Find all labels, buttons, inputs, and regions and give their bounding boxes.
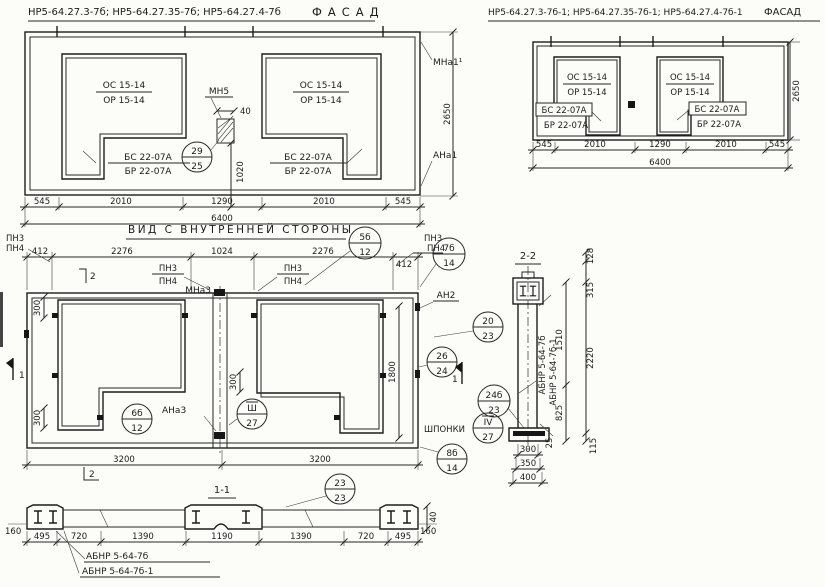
pn-label-mid-right: ПН3 ПН4 xyxy=(258,264,309,291)
svg-text:2276: 2276 xyxy=(312,247,334,257)
svg-text:Ш: Ш xyxy=(247,404,257,414)
opening-mark-os: ОС 15-14 xyxy=(300,81,343,91)
svg-text:25: 25 xyxy=(191,162,202,172)
svg-text:495: 495 xyxy=(395,532,411,542)
sill-block-label-left: БС 22-07А БР 22-07А xyxy=(83,151,190,177)
key-mark xyxy=(415,303,420,311)
svg-text:27: 27 xyxy=(482,433,493,443)
svg-text:2276: 2276 xyxy=(111,247,133,257)
node-circle-29-25: 29 25 xyxy=(182,140,219,172)
svg-text:160: 160 xyxy=(5,527,21,537)
svg-text:720: 720 xyxy=(358,532,374,542)
opening-mark-or: ОР 15-14 xyxy=(567,88,606,98)
inner-bottom-dims: 3200 3200 xyxy=(22,450,423,470)
inner-opening-right xyxy=(251,300,386,433)
mark-bs: БС 22-07А xyxy=(542,106,587,116)
svg-text:АНа3: АНа3 xyxy=(162,406,186,416)
facade-left: НР5-64.27.3-7б; НР5-64.27.35-7б; НР5-64.… xyxy=(20,5,463,228)
inner-view-title: ВИД С ВНУТРЕННЕЙ СТОРОНЫ xyxy=(128,223,354,236)
facade-right: НР5-64.27.3-7б-1; НР5-64.27.35-7б-1; НР5… xyxy=(488,7,820,172)
ana3-label: АНа3 xyxy=(162,406,216,431)
svg-text:495: 495 xyxy=(34,532,50,542)
mark-br: БР 22-07А xyxy=(285,167,333,177)
svg-text:ПН3: ПН3 xyxy=(6,234,24,244)
svg-text:6б: 6б xyxy=(131,409,143,419)
section-marker-2-top: 2 xyxy=(79,269,96,283)
facade-right-height: 2650 xyxy=(792,80,802,102)
svg-text:1290: 1290 xyxy=(649,140,671,150)
svg-text:24: 24 xyxy=(436,367,448,377)
facade-left-dims: 545 2010 1290 2010 545 6400 xyxy=(20,197,425,228)
drawing-canvas: НР5-64.27.3-7б; НР5-64.27.35-7б; НР5-64.… xyxy=(0,0,825,587)
mna1-label: МНа1¹ xyxy=(433,58,463,68)
mark-bs: БС 22-07А xyxy=(695,105,740,115)
svg-text:26: 26 xyxy=(436,352,448,362)
section-1-1: 1-1 23 23 160 160 40 495 720 139 xyxy=(5,474,439,577)
svg-text:545: 545 xyxy=(769,140,785,150)
svg-text:7б: 7б xyxy=(443,244,455,254)
svg-text:545: 545 xyxy=(34,197,50,207)
svg-text:1390: 1390 xyxy=(132,532,154,542)
facade-left-title: НР5-64.27.3-7б; НР5-64.27.35-7б; НР5-64.… xyxy=(28,7,281,18)
svg-text:ПН3: ПН3 xyxy=(284,264,302,274)
opening-mark-or: ОР 15-14 xyxy=(300,96,342,106)
svg-text:3200: 3200 xyxy=(309,455,331,465)
scan-artifact xyxy=(0,292,3,347)
mark-bs: БС 22-07А xyxy=(124,153,172,163)
mna3-label: МНа3 xyxy=(185,286,211,296)
opening-mark-os: ОС 15-14 xyxy=(567,73,607,83)
svg-text:6400: 6400 xyxy=(211,214,233,224)
section-1-1-body xyxy=(27,505,418,529)
node-circle-26-24: 26 24 xyxy=(419,347,457,377)
svg-text:412: 412 xyxy=(32,247,48,257)
node-circle-8b-14: 8б 14 xyxy=(420,444,467,474)
dim-300-mid: 300 xyxy=(229,369,244,396)
node-circle-6b-12: 6б 12 xyxy=(122,404,152,434)
svg-text:ПН4: ПН4 xyxy=(6,244,24,254)
svg-text:ПН4: ПН4 xyxy=(284,277,302,287)
mn5-height-dim: 1020 xyxy=(236,161,246,183)
svg-text:2010: 2010 xyxy=(110,197,132,207)
svg-text:400: 400 xyxy=(520,473,536,483)
facade-right-title: НР5-64.27.3-7б-1; НР5-64.27.35-7б-1; НР5… xyxy=(488,8,743,18)
section-1-1-title: 1-1 xyxy=(214,485,230,496)
mark-abnr-1: АБНР 5-64-7б-1 xyxy=(82,567,153,577)
node-circle-4-27: IV 27 xyxy=(473,413,503,443)
section-2-2-right-dims: 128 315 2220 115 xyxy=(583,248,600,454)
svg-text:1800: 1800 xyxy=(388,361,398,383)
svg-text:14: 14 xyxy=(443,259,455,269)
section-2-2: 2-2 128 315 2220 115 1510 825 25 АБНР 5-… xyxy=(508,248,599,487)
section-2-2-bottom-dims: 300 350 400 xyxy=(508,444,548,487)
dim-300-bottom-left: 300 xyxy=(33,405,48,432)
svg-text:825: 825 xyxy=(555,405,565,421)
svg-text:1: 1 xyxy=(452,375,458,385)
mark-abnr-1: АБНР 5-64-7б-1 xyxy=(549,338,559,405)
svg-text:ШПОНКИ: ШПОНКИ xyxy=(424,425,465,435)
node-circle-20-23: 20 23 xyxy=(434,312,503,342)
svg-text:1024: 1024 xyxy=(211,247,233,257)
facade-left-right-side: МНа1¹ АНа1 2650 xyxy=(420,29,463,200)
node-circle-23-23: 23 23 xyxy=(286,474,355,507)
svg-text:2010: 2010 xyxy=(584,140,606,150)
svg-text:1190: 1190 xyxy=(211,532,233,542)
svg-text:12: 12 xyxy=(131,424,142,434)
svg-text:1390: 1390 xyxy=(290,532,312,542)
section-2-2-marks: АБНР 5-64-7б АБНР 5-64-7б-1 xyxy=(538,336,559,406)
svg-text:315: 315 xyxy=(586,282,596,298)
mark-abnr: АБНР 5-64-7б xyxy=(86,552,149,562)
mark-br: БР 22-07А xyxy=(697,120,741,130)
svg-text:24б: 24б xyxy=(485,391,502,401)
opening-mark-or: ОР 15-14 xyxy=(670,88,709,98)
svg-text:27: 27 xyxy=(246,419,257,429)
svg-text:720: 720 xyxy=(71,532,87,542)
svg-text:5б: 5б xyxy=(359,233,371,243)
svg-text:АН2: АН2 xyxy=(437,291,456,301)
svg-text:23: 23 xyxy=(482,332,493,342)
opening-mark-or: ОР 15-14 xyxy=(103,96,145,106)
svg-text:300: 300 xyxy=(33,410,43,426)
section-marker-1-left: 1 xyxy=(6,358,25,381)
shponki-label: ШПОНКИ xyxy=(424,425,465,435)
svg-text:ПН3: ПН3 xyxy=(159,264,177,274)
joint-connector-bottom xyxy=(214,432,225,439)
svg-text:25: 25 xyxy=(545,438,555,449)
svg-text:8б: 8б xyxy=(446,449,458,459)
opening-mark-os: ОС 15-14 xyxy=(670,73,710,83)
svg-text:2010: 2010 xyxy=(313,197,335,207)
joint-connector-top xyxy=(214,289,225,296)
key-mark xyxy=(415,370,420,378)
svg-text:300: 300 xyxy=(229,374,239,390)
sill-block-label-right: БС 22-07А БР 22-07А xyxy=(270,149,362,177)
svg-text:ПН4: ПН4 xyxy=(159,277,177,287)
facade-left-height: 2650 xyxy=(443,103,453,125)
svg-text:545: 545 xyxy=(536,140,552,150)
svg-text:2010: 2010 xyxy=(715,140,737,150)
svg-text:2: 2 xyxy=(90,272,96,282)
svg-text:29: 29 xyxy=(191,147,203,157)
svg-text:6400: 6400 xyxy=(649,158,671,168)
mark-br: БР 22-07А xyxy=(125,167,173,177)
facade-right-sill-label-left: БС 22-07А БР 22-07А xyxy=(536,103,601,131)
svg-text:1290: 1290 xyxy=(211,197,233,207)
svg-text:40: 40 xyxy=(429,512,439,523)
svg-text:23: 23 xyxy=(334,494,345,504)
svg-text:20: 20 xyxy=(482,317,494,327)
svg-text:3200: 3200 xyxy=(113,455,135,465)
blueprint-page: НР5-64.27.3-7б; НР5-64.27.35-7б; НР5-64.… xyxy=(0,0,825,587)
facade-right-sill-label-right: БС 22-07А БР 22-07А xyxy=(677,102,746,130)
svg-text:2: 2 xyxy=(89,470,95,480)
svg-text:14: 14 xyxy=(446,464,458,474)
svg-text:545: 545 xyxy=(395,197,411,207)
opening-mark-os: ОС 15-14 xyxy=(103,81,146,91)
inner-view: ВИД С ВНУТРЕННЕЙ СТОРОНЫ 5б 12 412 2276 … xyxy=(6,223,524,480)
svg-text:115: 115 xyxy=(589,438,599,454)
svg-text:128: 128 xyxy=(586,248,596,264)
svg-text:IV: IV xyxy=(484,418,494,428)
svg-text:2220: 2220 xyxy=(586,347,596,369)
svg-text:412: 412 xyxy=(396,260,412,270)
section-marker-2-bottom: 2 xyxy=(84,467,99,480)
svg-text:23: 23 xyxy=(334,479,345,489)
mark-bs: БС 22-07А xyxy=(284,153,332,163)
key-mark xyxy=(628,101,635,108)
section-2-2-title: 2-2 xyxy=(520,251,536,262)
svg-text:350: 350 xyxy=(520,459,536,469)
key-mark xyxy=(24,330,29,338)
mn5-label: МН5 xyxy=(209,87,229,97)
node-circle-3-27: Ш 27 xyxy=(229,399,267,429)
dim-1800: 1800 xyxy=(388,303,403,442)
mark-abnr: АБНР 5-64-7б xyxy=(538,336,548,395)
facade-right-title-suffix: ФАСАД xyxy=(764,7,801,18)
an2-label: АН2 xyxy=(420,291,459,308)
ana1-label: АНа1 xyxy=(433,151,457,161)
mn5-width-dim: 40 xyxy=(240,107,251,117)
svg-text:300: 300 xyxy=(520,445,536,455)
facade-left-title-suffix: ФАСАД xyxy=(312,5,385,19)
svg-text:1: 1 xyxy=(19,371,25,381)
svg-text:300: 300 xyxy=(33,300,43,316)
svg-text:ПН3: ПН3 xyxy=(424,234,442,244)
mark-br: БР 22-07А xyxy=(544,121,588,131)
